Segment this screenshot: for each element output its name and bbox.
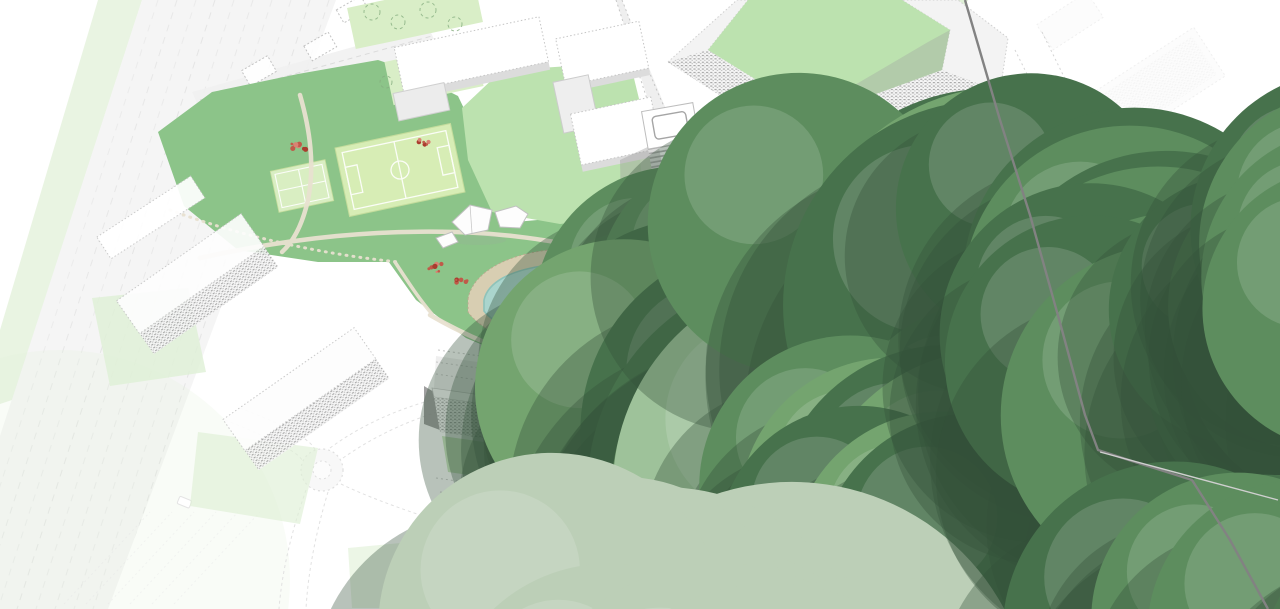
masterplan-canvas <box>0 0 1280 609</box>
playground-element <box>291 143 294 146</box>
playground-element <box>438 270 441 273</box>
roundabout-inner <box>313 461 331 479</box>
playground-element <box>466 279 469 282</box>
playground-element <box>455 279 457 281</box>
pavilion-shadow <box>450 235 506 245</box>
playground-element <box>418 138 422 142</box>
playground-element <box>426 143 428 145</box>
playground-element <box>439 262 443 266</box>
playground-element <box>293 142 298 147</box>
masterplan-rendering <box>0 0 1280 609</box>
playground-element <box>432 264 437 269</box>
playground-element <box>302 147 306 151</box>
playground-element <box>422 141 425 144</box>
playground-element <box>459 278 464 283</box>
